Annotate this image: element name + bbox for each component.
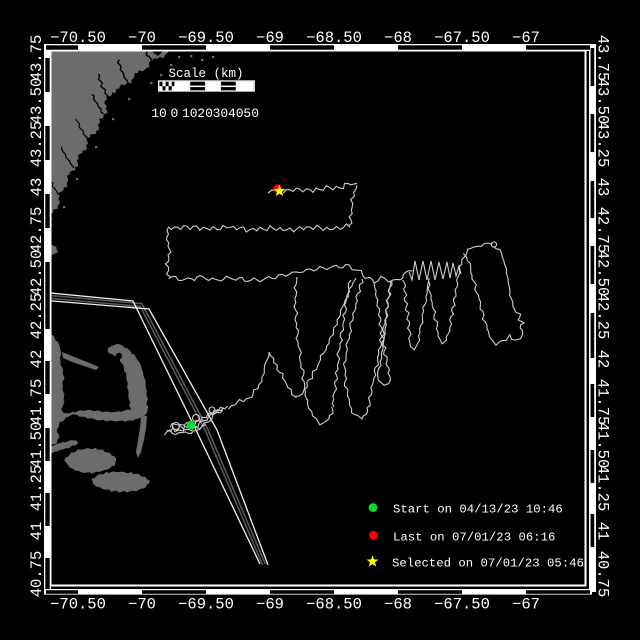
- svg-text:−67.50: −67.50: [434, 29, 490, 47]
- svg-text:−70: −70: [128, 596, 156, 614]
- svg-text:40.75: 40.75: [594, 551, 612, 598]
- svg-text:42.75: 42.75: [28, 207, 46, 254]
- svg-text:−68.50: −68.50: [306, 29, 362, 47]
- svg-text:−70.50: −70.50: [50, 29, 106, 47]
- svg-text:41.25: 41.25: [28, 465, 46, 512]
- svg-text:−67: −67: [512, 29, 540, 47]
- svg-text:42.50: 42.50: [28, 250, 46, 297]
- svg-text:−68: −68: [384, 29, 412, 47]
- svg-text:20: 20: [197, 106, 213, 121]
- svg-text:−70: −70: [128, 29, 156, 47]
- svg-text:43: 43: [28, 178, 46, 197]
- svg-text:40: 40: [228, 106, 244, 121]
- svg-text:Scale (km): Scale (km): [168, 67, 243, 81]
- svg-text:10: 10: [151, 106, 167, 121]
- svg-text:−69.50: −69.50: [178, 29, 234, 47]
- svg-text:Last on 07/01/23 06:16: Last on 07/01/23 06:16: [393, 531, 555, 545]
- svg-text:40.75: 40.75: [28, 551, 46, 598]
- svg-text:0: 0: [170, 106, 178, 121]
- svg-text:−67: −67: [512, 596, 540, 614]
- svg-text:41.25: 41.25: [594, 465, 612, 512]
- svg-text:43.50: 43.50: [28, 78, 46, 125]
- svg-text:42.75: 42.75: [594, 207, 612, 254]
- svg-text:42: 42: [28, 350, 46, 369]
- svg-text:42.25: 42.25: [28, 293, 46, 340]
- svg-text:43: 43: [594, 178, 612, 197]
- svg-text:−69: −69: [256, 29, 284, 47]
- svg-text:−69: −69: [256, 596, 284, 614]
- svg-text:43.50: 43.50: [594, 78, 612, 125]
- svg-text:43.75: 43.75: [594, 35, 612, 82]
- svg-text:41.50: 41.50: [28, 422, 46, 469]
- svg-text:Start on 04/13/23 10:46: Start on 04/13/23 10:46: [393, 503, 563, 517]
- svg-text:42.50: 42.50: [594, 250, 612, 297]
- svg-text:50: 50: [243, 106, 259, 121]
- svg-text:−67.50: −67.50: [434, 596, 490, 614]
- svg-text:43.75: 43.75: [28, 35, 46, 82]
- svg-text:41: 41: [594, 522, 612, 541]
- svg-text:Selected on 07/01/23 05:46: Selected on 07/01/23 05:46: [392, 557, 584, 571]
- svg-text:43.25: 43.25: [594, 121, 612, 168]
- svg-text:43.25: 43.25: [28, 121, 46, 168]
- svg-text:41.75: 41.75: [28, 379, 46, 426]
- svg-text:42.25: 42.25: [594, 293, 612, 340]
- svg-text:10: 10: [182, 106, 198, 121]
- svg-text:41: 41: [28, 522, 46, 541]
- svg-text:42: 42: [594, 350, 612, 369]
- svg-text:41.50: 41.50: [594, 422, 612, 469]
- svg-text:30: 30: [213, 106, 229, 121]
- svg-text:41.75: 41.75: [594, 379, 612, 426]
- svg-text:−70.50: −70.50: [50, 596, 106, 614]
- svg-text:−68: −68: [384, 596, 412, 614]
- svg-text:−68.50: −68.50: [306, 596, 362, 614]
- svg-text:−69.50: −69.50: [178, 596, 234, 614]
